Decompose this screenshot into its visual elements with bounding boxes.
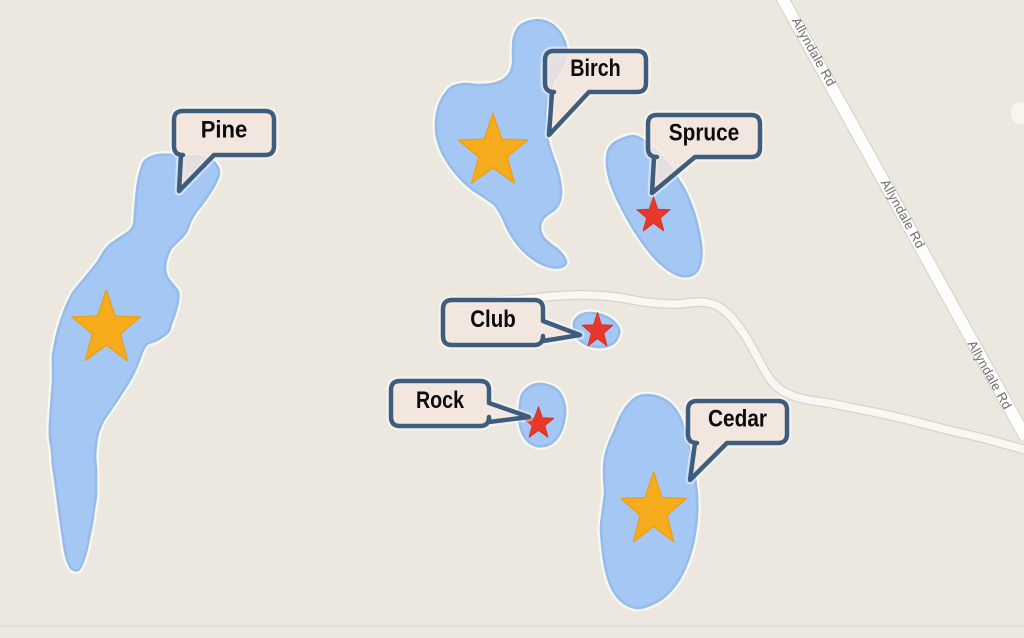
svg-text:Rock: Rock — [416, 387, 465, 414]
svg-text:Club: Club — [470, 306, 516, 333]
svg-text:Cedar: Cedar — [708, 406, 767, 433]
svg-text:Spruce: Spruce — [669, 120, 740, 147]
svg-text:Birch: Birch — [570, 55, 621, 82]
svg-text:Pine: Pine — [201, 117, 248, 144]
